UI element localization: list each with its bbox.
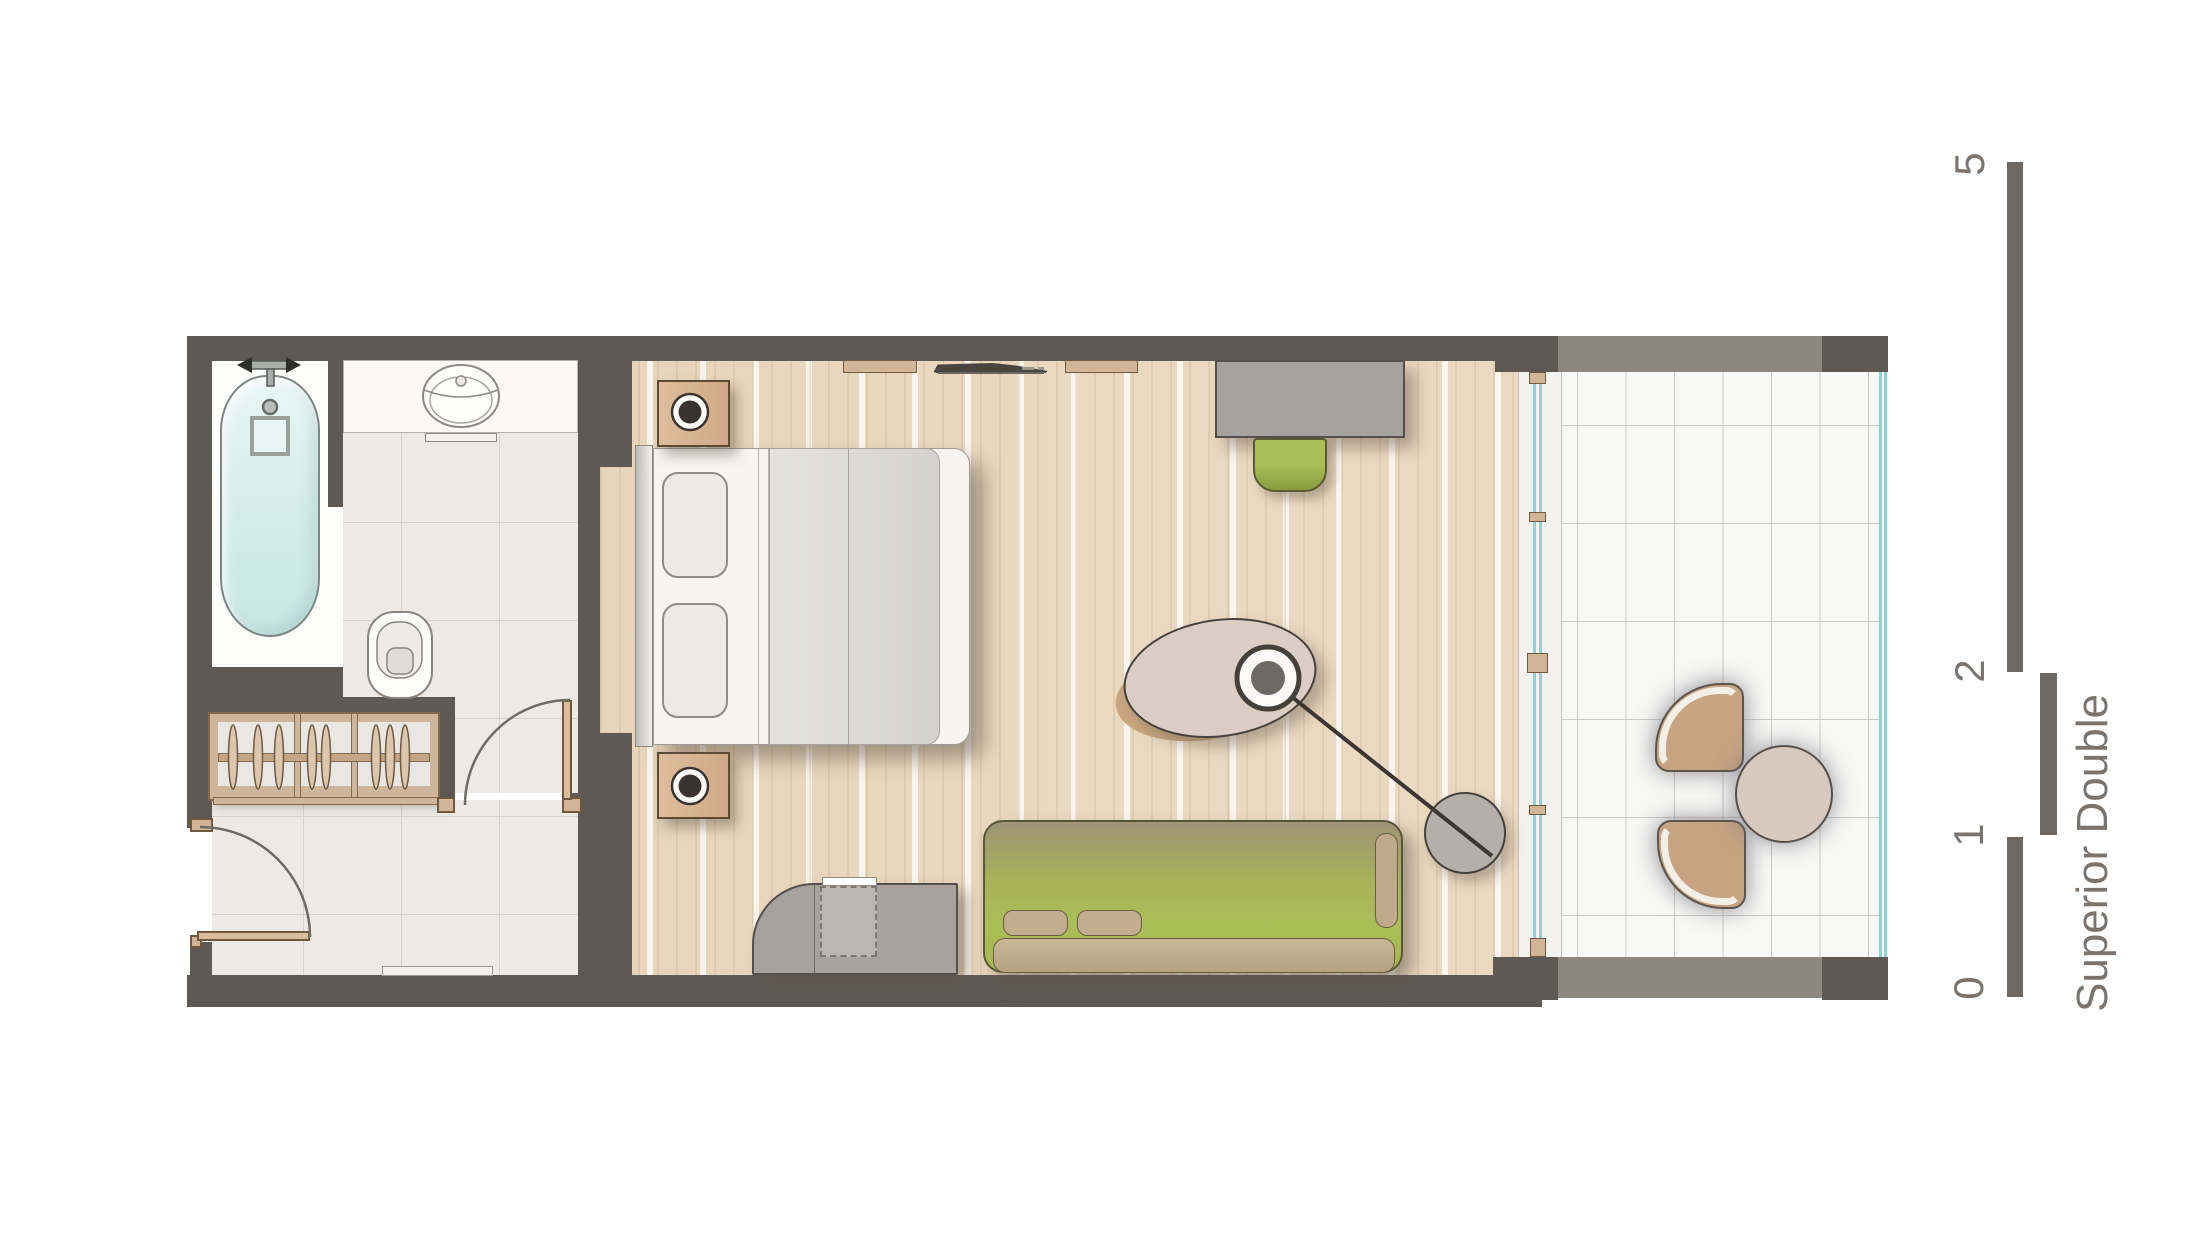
scale-label-5: 5 — [1949, 134, 1991, 194]
nightstand-lamp-icon — [672, 768, 708, 804]
scale-bar-segment-0-1 — [2007, 837, 2023, 997]
shower-fixture-bar — [250, 361, 288, 369]
wardrobe-hangers — [229, 725, 410, 789]
shower-arrow-right-icon — [286, 357, 301, 373]
wall-tv-detail — [1022, 367, 1034, 370]
floor-lamp-arm — [1268, 678, 1492, 856]
scale-label-0: 0 — [1948, 958, 1990, 1018]
floor-lamp-bulb — [1251, 661, 1285, 695]
washbasin — [423, 365, 499, 427]
room-type-title: Superior Double — [2071, 712, 2115, 1012]
shower-fixture-stem — [267, 369, 274, 386]
wall-tv-detail — [1038, 367, 1044, 370]
entry-door-arc — [200, 827, 310, 937]
tub-tray — [252, 418, 288, 454]
scale-label-1: 1 — [1948, 805, 1990, 865]
shower-arrow-left-icon — [237, 357, 252, 373]
toilet — [368, 612, 432, 698]
tub-faucet — [263, 400, 277, 414]
scale-label-2: 2 — [1949, 641, 1991, 701]
floor-plan-superior-double: 5 2 1 0 Superior Double — [0, 0, 2200, 1238]
bathroom-door-arc — [465, 700, 570, 805]
nightstand-lamp-icon — [672, 394, 708, 430]
scale-bar-segment-2-5 — [2007, 162, 2023, 672]
plan-overlay — [0, 0, 2200, 1238]
scale-bar-segment-1-2 — [2040, 673, 2057, 835]
